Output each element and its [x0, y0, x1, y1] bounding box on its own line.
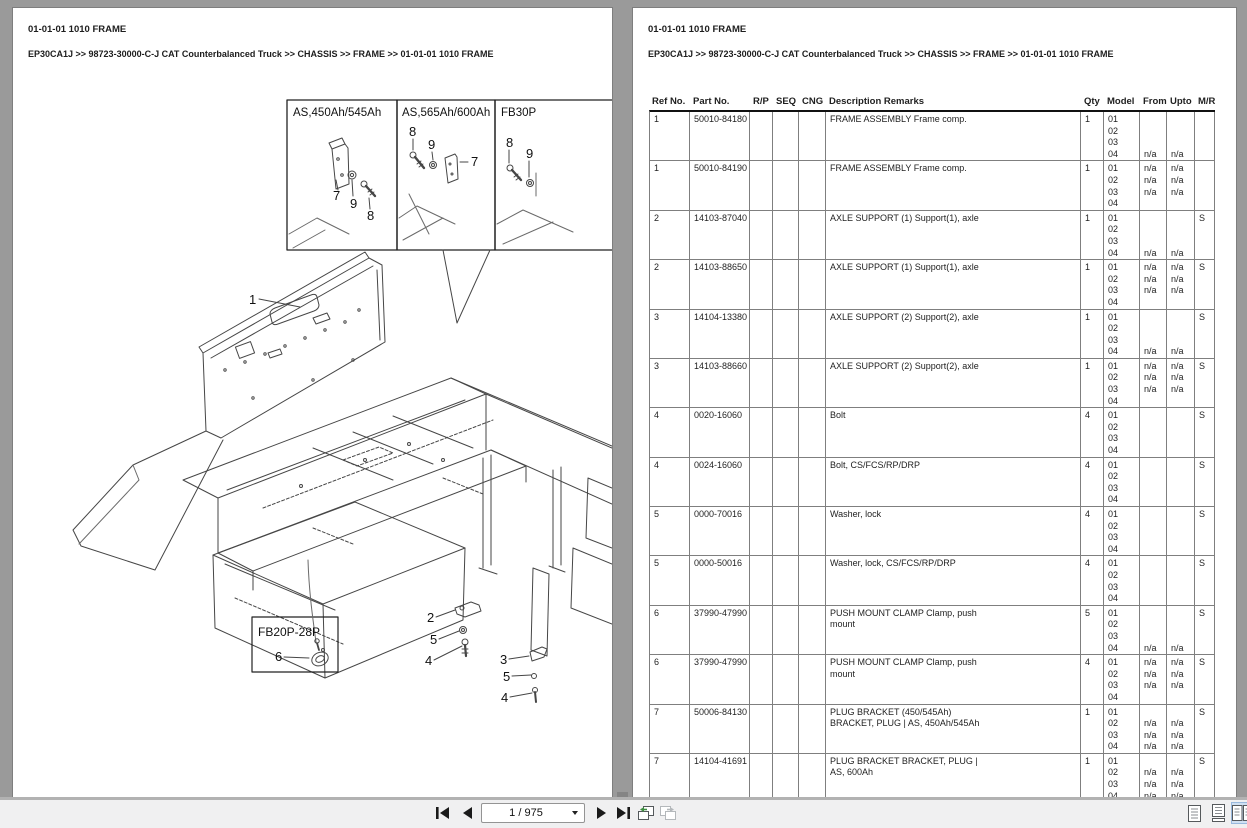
- table-cell: n/an/an/a: [1140, 260, 1167, 308]
- previous-page-button[interactable]: [458, 803, 476, 823]
- table-cell: 4: [650, 458, 690, 506]
- table-cell: 01020304: [1104, 359, 1140, 407]
- table-cell: 50010-84190: [690, 161, 750, 209]
- column-header: R/P: [750, 96, 773, 110]
- inset-box-450ah: [287, 100, 397, 250]
- single-page-view-icon: [1188, 805, 1201, 822]
- table-cell: 5: [650, 507, 690, 555]
- table-cell: n/an/an/a: [1140, 359, 1167, 407]
- table-cell: 14103-87040: [690, 211, 750, 259]
- callout-7: 7: [471, 154, 478, 169]
- table-cell: [1167, 507, 1195, 555]
- callout-8: 8: [506, 135, 513, 150]
- table-cell: [1167, 556, 1195, 604]
- table-cell: [799, 161, 826, 209]
- column-header: Description Remarks: [826, 96, 1081, 110]
- table-cell: [773, 260, 799, 308]
- callout-1: 1: [249, 292, 256, 307]
- table-cell: 01020304: [1104, 260, 1140, 308]
- table-cell: 50010-84180: [690, 112, 750, 160]
- table-cell: 1: [1081, 211, 1104, 259]
- table-cell: S: [1195, 606, 1215, 654]
- table-cell: 01020304: [1104, 754, 1140, 802]
- column-header: Upto: [1167, 96, 1195, 110]
- table-cell: 01020304: [1104, 211, 1140, 259]
- inset-title: AS,565Ah/600Ah: [402, 107, 490, 119]
- table-cell: 14103-88660: [690, 359, 750, 407]
- table-cell: AXLE SUPPORT (2) Support(2), axle: [826, 310, 1081, 358]
- callout-5: 5: [430, 632, 437, 647]
- table-cell: 37990-47990: [690, 606, 750, 654]
- table-cell: n/an/an/a: [1140, 754, 1167, 802]
- table-cell: 1: [1081, 359, 1104, 407]
- table-cell: [773, 408, 799, 456]
- table-cell: [750, 507, 773, 555]
- table-cell: [750, 359, 773, 407]
- table-cell: 1: [1081, 112, 1104, 160]
- first-page-button[interactable]: [434, 803, 452, 823]
- next-page-button[interactable]: [592, 803, 610, 823]
- column-header: M/R: [1195, 96, 1215, 110]
- table-cell: 6: [650, 655, 690, 703]
- column-header: Model: [1104, 96, 1140, 110]
- continuous-view-button[interactable]: [1206, 802, 1230, 824]
- table-cell: n/an/an/a: [1167, 359, 1195, 407]
- table-cell: [1140, 458, 1167, 506]
- table-cell: Washer, lock, CS/FCS/RP/DRP: [826, 556, 1081, 604]
- table-row: 50000-70016 Washer, lock401020304 S: [650, 507, 1215, 556]
- table-cell: [799, 359, 826, 407]
- table-cell: [799, 112, 826, 160]
- table-cell: 14104-41691: [690, 754, 750, 802]
- page-title: 01-01-01 1010 FRAME: [648, 24, 746, 35]
- table-cell: [799, 408, 826, 456]
- next-view-icon: [659, 805, 677, 821]
- table-cell: 0000-70016: [690, 507, 750, 555]
- document-view-area: 01-01-01 1010 FRAME EP30CA1J >> 98723-30…: [0, 0, 1247, 797]
- table-cell: S: [1195, 705, 1215, 753]
- callout-4: 4: [425, 653, 432, 668]
- table-cell: 50006-84130: [690, 705, 750, 753]
- column-header: SEQ: [773, 96, 799, 110]
- inset-title: AS,450Ah/545Ah: [293, 107, 381, 119]
- table-cell: AXLE SUPPORT (1) Support(1), axle: [826, 260, 1081, 308]
- table-cell: [750, 705, 773, 753]
- table-row: 637990-47990 PUSH MOUNT CLAMP Clamp, pus…: [650, 655, 1215, 704]
- table-cell: PLUG BRACKET BRACKET, PLUG |AS, 600Ah: [826, 754, 1081, 802]
- inset-box-565ah: [397, 100, 495, 250]
- table-cell: 01020304: [1104, 310, 1140, 358]
- table-cell: PUSH MOUNT CLAMP Clamp, pushmount: [826, 655, 1081, 703]
- callout-8: 8: [409, 124, 416, 139]
- table-cell: [1167, 458, 1195, 506]
- table-cell: [773, 458, 799, 506]
- table-cell: 01020304: [1104, 556, 1140, 604]
- table-cell: 01020304: [1104, 161, 1140, 209]
- table-cell: 01020304: [1104, 112, 1140, 160]
- table-cell: Bolt: [826, 408, 1081, 456]
- table-cell: AXLE SUPPORT (2) Support(2), axle: [826, 359, 1081, 407]
- table-cell: 4: [1081, 458, 1104, 506]
- table-cell: [799, 606, 826, 654]
- previous-page-icon: [462, 807, 473, 819]
- column-header: Qty: [1081, 96, 1104, 110]
- last-page-button[interactable]: [614, 803, 632, 823]
- two-page-view-button[interactable]: [1231, 802, 1247, 824]
- last-page-icon: [616, 807, 630, 819]
- table-cell: [750, 211, 773, 259]
- table-cell: [750, 112, 773, 160]
- table-cell: [773, 112, 799, 160]
- table-cell: 1: [1081, 754, 1104, 802]
- table-header-row: Ref No.Part No.R/PSEQCNGDescription Rema…: [649, 96, 1215, 110]
- table-cell: 2: [650, 260, 690, 308]
- table-cell: 4: [1081, 556, 1104, 604]
- table-cell: [1195, 112, 1215, 160]
- table-cell: 01020304: [1104, 655, 1140, 703]
- table-cell: S: [1195, 211, 1215, 259]
- table-cell: S: [1195, 458, 1215, 506]
- table-cell: FRAME ASSEMBLY Frame comp.: [826, 112, 1081, 160]
- table-cell: S: [1195, 507, 1215, 555]
- table-cell: 1: [650, 161, 690, 209]
- table-cell: [799, 310, 826, 358]
- table-cell: [1140, 408, 1167, 456]
- table-cell: Washer, lock: [826, 507, 1081, 555]
- table-cell: PUSH MOUNT CLAMP Clamp, pushmount: [826, 606, 1081, 654]
- callout-9: 9: [350, 196, 357, 211]
- table-cell: [750, 655, 773, 703]
- table-cell: n/an/an/a: [1140, 161, 1167, 209]
- table-cell: FRAME ASSEMBLY Frame comp.: [826, 161, 1081, 209]
- right-page: 01-01-01 1010 FRAME EP30CA1J >> 98723-30…: [633, 8, 1236, 797]
- table-cell: n/a: [1140, 606, 1167, 654]
- left-page: 01-01-01 1010 FRAME EP30CA1J >> 98723-30…: [13, 8, 612, 797]
- table-cell: 1: [1081, 310, 1104, 358]
- table-cell: [773, 161, 799, 209]
- table-row: 150010-84190 FRAME ASSEMBLY Frame comp.1…: [650, 161, 1215, 210]
- column-header: From: [1140, 96, 1167, 110]
- table-cell: [750, 754, 773, 802]
- table-cell: [750, 556, 773, 604]
- column-header: Part No.: [690, 96, 750, 110]
- table-cell: [773, 359, 799, 407]
- table-cell: n/a: [1167, 211, 1195, 259]
- table-cell: [773, 705, 799, 753]
- table-cell: [773, 507, 799, 555]
- table-cell: [799, 556, 826, 604]
- next-page-icon: [596, 807, 607, 819]
- table-cell: 5: [650, 556, 690, 604]
- table-cell: [773, 754, 799, 802]
- table-cell: [773, 606, 799, 654]
- table-cell: 01020304: [1104, 458, 1140, 506]
- table-cell: 1: [650, 112, 690, 160]
- table-cell: [799, 458, 826, 506]
- table-cell: Bolt, CS/FCS/RP/DRP: [826, 458, 1081, 506]
- table-cell: S: [1195, 260, 1215, 308]
- table-row: 750006-84130 PLUG BRACKET (450/545Ah)BRA…: [650, 705, 1215, 754]
- table-cell: [799, 705, 826, 753]
- table-cell: n/an/an/a: [1167, 161, 1195, 209]
- table-cell: 01020304: [1104, 507, 1140, 555]
- table-cell: 37990-47990: [690, 655, 750, 703]
- table-row: 40020-16060 Bolt401020304 S: [650, 408, 1215, 457]
- table-cell: n/an/an/a: [1167, 754, 1195, 802]
- page-number-input[interactable]: [482, 805, 570, 821]
- callout-8: 8: [367, 208, 374, 223]
- table-cell: n/an/an/a: [1140, 705, 1167, 753]
- table-cell: [1167, 408, 1195, 456]
- table-cell: S: [1195, 408, 1215, 456]
- callout-7: 7: [333, 188, 340, 203]
- table-cell: S: [1195, 754, 1215, 802]
- table-cell: 4: [650, 408, 690, 456]
- table-cell: [1140, 507, 1167, 555]
- column-header: Ref No.: [649, 96, 690, 110]
- table-cell: PLUG BRACKET (450/545Ah)BRACKET, PLUG | …: [826, 705, 1081, 753]
- table-cell: 3: [650, 359, 690, 407]
- next-view-button[interactable]: [659, 803, 677, 823]
- table-row: 214103-87040 AXLE SUPPORT (1) Support(1)…: [650, 211, 1215, 260]
- callout-3: 3: [500, 652, 507, 667]
- two-page-view-icon: [1232, 805, 1247, 821]
- callout-9: 9: [428, 137, 435, 152]
- table-row: 40024-16060 Bolt, CS/FCS/RP/DRP401020304…: [650, 458, 1215, 507]
- table-row: 314104-13380 AXLE SUPPORT (2) Support(2)…: [650, 310, 1215, 359]
- callout-5b: 5: [503, 669, 510, 684]
- table-cell: [799, 211, 826, 259]
- table-cell: 4: [1081, 655, 1104, 703]
- table-cell: [773, 310, 799, 358]
- table-cell: [750, 606, 773, 654]
- table-cell: n/an/an/a: [1167, 705, 1195, 753]
- table-cell: n/a: [1167, 112, 1195, 160]
- table-cell: [799, 260, 826, 308]
- table-cell: 7: [650, 705, 690, 753]
- table-cell: 0000-50016: [690, 556, 750, 604]
- previous-view-icon: [637, 805, 655, 821]
- table-cell: 2: [650, 211, 690, 259]
- previous-view-button[interactable]: [637, 803, 655, 823]
- table-cell: [1140, 556, 1167, 604]
- callout-4b: 4: [501, 690, 508, 705]
- table-cell: 7: [650, 754, 690, 802]
- table-row: 314103-88660 AXLE SUPPORT (2) Support(2)…: [650, 359, 1215, 408]
- table-row: 214103-88650 AXLE SUPPORT (1) Support(1)…: [650, 260, 1215, 309]
- table-cell: 1: [1081, 705, 1104, 753]
- table-cell: [750, 310, 773, 358]
- table-cell: [773, 556, 799, 604]
- table-cell: n/a: [1140, 211, 1167, 259]
- table-cell: 14104-13380: [690, 310, 750, 358]
- breadcrumb: EP30CA1J >> 98723-30000-C-J CAT Counterb…: [648, 49, 1114, 59]
- table-cell: S: [1195, 310, 1215, 358]
- table-cell: [773, 211, 799, 259]
- table-row: 50000-50016 Washer, lock, CS/FCS/RP/DRP4…: [650, 556, 1215, 605]
- column-header: CNG: [799, 96, 826, 110]
- table-cell: AXLE SUPPORT (1) Support(1), axle: [826, 211, 1081, 259]
- table-cell: [750, 161, 773, 209]
- table-cell: 0020-16060: [690, 408, 750, 456]
- table-cell: n/an/an/a: [1140, 655, 1167, 703]
- table-cell: [799, 655, 826, 703]
- single-page-view-button[interactable]: [1182, 802, 1206, 824]
- table-cell: 4: [1081, 507, 1104, 555]
- inset-box-fb30p: [495, 100, 612, 250]
- table-cell: n/a: [1167, 310, 1195, 358]
- table-row: 637990-47990 PUSH MOUNT CLAMP Clamp, pus…: [650, 606, 1215, 655]
- table-cell: n/a: [1167, 606, 1195, 654]
- table-cell: 01020304: [1104, 705, 1140, 753]
- parts-diagram: AS,450Ah/545Ah AS,565Ah/600Ah FB30P 7 9 …: [13, 8, 612, 797]
- table-cell: n/an/an/a: [1167, 655, 1195, 703]
- table-cell: 4: [1081, 408, 1104, 456]
- parts-table-body: 150010-84180 FRAME ASSEMBLY Frame comp.1…: [649, 110, 1215, 803]
- table-cell: 6: [650, 606, 690, 654]
- detail-box-label: FB20P-28P: [258, 625, 320, 639]
- table-cell: 01020304: [1104, 408, 1140, 456]
- table-cell: S: [1195, 556, 1215, 604]
- table-cell: 14103-88650: [690, 260, 750, 308]
- continuous-view-icon: [1212, 804, 1225, 822]
- callout-6: 6: [275, 649, 282, 664]
- parts-table: Ref No.Part No.R/PSEQCNGDescription Rema…: [649, 96, 1215, 803]
- table-cell: 3: [650, 310, 690, 358]
- table-row: 150010-84180 FRAME ASSEMBLY Frame comp.1…: [650, 112, 1215, 161]
- table-cell: [750, 458, 773, 506]
- bottom-toolbar: [0, 797, 1247, 828]
- callout-2: 2: [427, 610, 434, 625]
- table-row: 714104-41691 PLUG BRACKET BRACKET, PLUG …: [650, 754, 1215, 803]
- page-number-combobox[interactable]: [481, 803, 585, 823]
- table-cell: [773, 655, 799, 703]
- first-page-icon: [436, 807, 450, 819]
- table-cell: 0024-16060: [690, 458, 750, 506]
- table-cell: [799, 754, 826, 802]
- table-cell: [1195, 161, 1215, 209]
- table-cell: n/a: [1140, 310, 1167, 358]
- chevron-down-icon[interactable]: [572, 811, 578, 815]
- table-cell: 5: [1081, 606, 1104, 654]
- table-cell: [799, 507, 826, 555]
- table-cell: n/an/an/a: [1167, 260, 1195, 308]
- callout-9: 9: [526, 146, 533, 161]
- table-cell: 1: [1081, 260, 1104, 308]
- table-cell: 1: [1081, 161, 1104, 209]
- table-cell: S: [1195, 359, 1215, 407]
- table-cell: n/a: [1140, 112, 1167, 160]
- table-cell: [750, 260, 773, 308]
- table-cell: S: [1195, 655, 1215, 703]
- table-cell: 01020304: [1104, 606, 1140, 654]
- inset-title: FB30P: [501, 107, 536, 119]
- table-cell: [750, 408, 773, 456]
